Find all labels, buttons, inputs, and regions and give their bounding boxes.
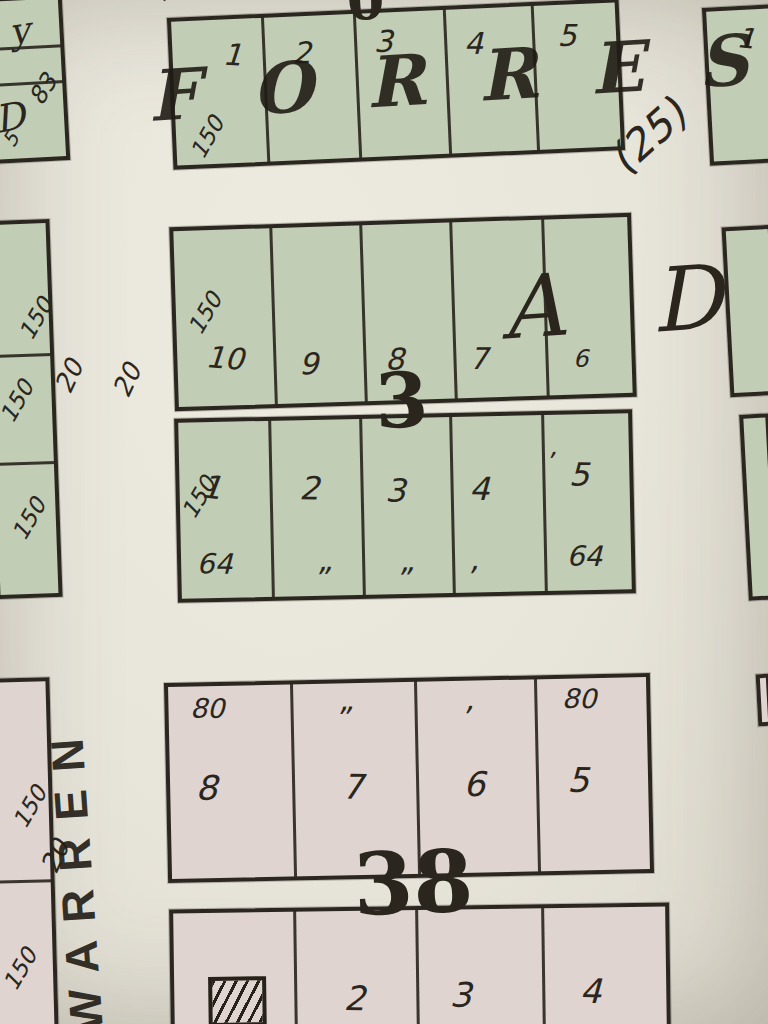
lot-number: 4 [469,473,490,505]
lot-number: 2 [343,981,365,1015]
lot-divider-line [269,226,278,406]
lot-divider-line [0,879,53,884]
street-width-label: 20 [50,356,88,397]
block-number-partial: 0 [346,0,385,28]
dimension-label: 64 [196,550,232,578]
plat-map-photo: y83D512345150110987615012345’15064„„‚641… [0,0,768,1024]
right-corner-pink [756,674,768,727]
lot-number: 7 [469,344,488,374]
dimension-label: 150 [8,495,50,545]
left-strip-green: 150150150 [0,219,63,599]
dimension-label: 64 [566,543,602,571]
lot-number: 5 [567,763,589,797]
partial-letter: y [7,12,33,51]
ditto-mark: „ [317,546,333,576]
lot-divider-line [541,413,548,593]
lot-divider-line [359,223,368,403]
lot-number: 9 [299,349,318,379]
dimension-label: 83 [25,70,62,109]
dimension-label: 2 [144,0,175,5]
lot-divider-line [293,910,298,1024]
addition-letter-d: D [648,253,725,346]
lot-divider-line [359,417,366,597]
dimension-label: 150 [15,294,57,344]
street-width-label: 20 [108,360,146,401]
lot-number: 2 [299,472,320,504]
block-number-3: 3 [374,362,430,440]
dimension-label: 150 [0,945,41,995]
addition-letter-a: A [498,262,566,352]
ditto-mark: „ [338,685,354,715]
lot-divider-line [541,906,546,1024]
lot-divider-line [0,353,52,358]
ditto-mark: ‚ [464,685,474,715]
lot-number: 5 [569,459,590,491]
lot-number: 8 [195,770,217,804]
right-strip-lower [739,413,768,600]
tick-mark: ’ [545,449,554,475]
right-strip-upper [722,225,768,397]
lot-number: 7 [341,769,363,803]
lot-divider-line [0,461,56,466]
hatched-building-icon [208,976,267,1024]
lot-divider-line [290,682,297,878]
lot-divider-line [449,415,456,595]
lot-divider-line [534,677,541,873]
ditto-mark: „ [399,546,415,576]
dimension-label: 2 [78,0,109,3]
lot-number: 3 [449,978,471,1012]
lot-number: 6 [573,347,588,371]
block-number-38: 38 [352,838,475,928]
lot-number: 6 [463,767,485,801]
lot-number: 4 [579,974,601,1008]
dimension-label: 150 [184,289,226,339]
lot-number: 3 [385,474,406,506]
lot-divider-line [449,220,458,400]
dimension-label: 150 [0,377,38,427]
dimension-label: 80 [190,695,225,722]
ditto-mark: ‚ [469,544,479,574]
lot-number: 10 [205,342,245,375]
dimension-label: 80 [562,685,597,712]
block-top-left: y83D5 [0,0,70,164]
lot-divider-line [268,419,275,599]
